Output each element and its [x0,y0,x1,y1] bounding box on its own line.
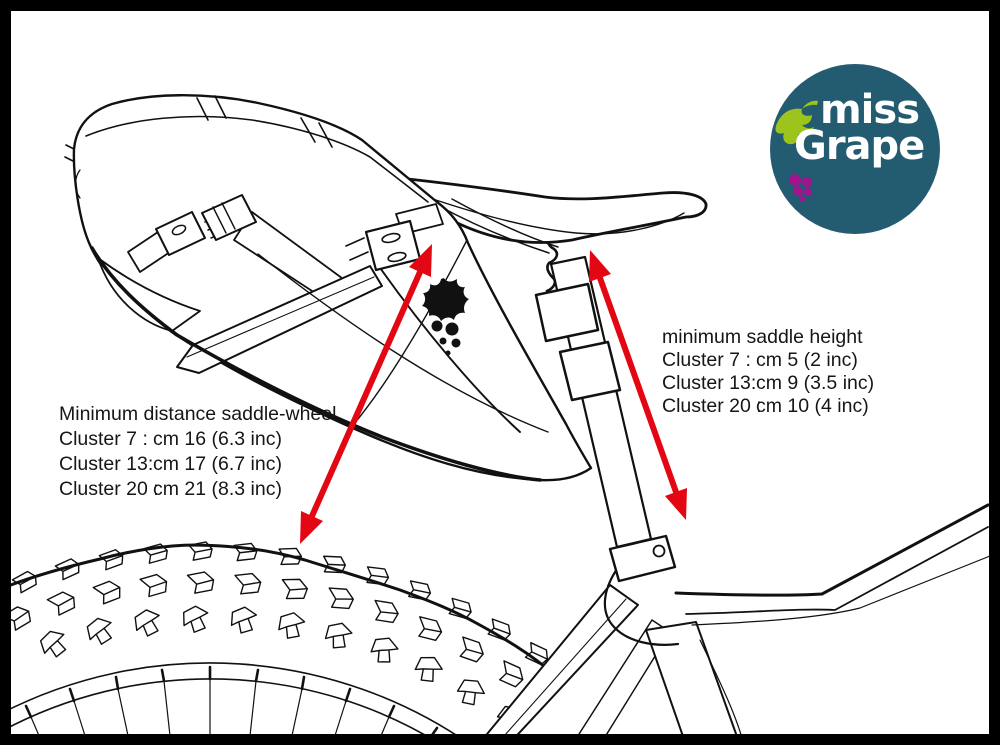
note-row-label: Cluster 7 : [662,349,756,372]
note-row-label: Cluster 20 : [59,477,153,502]
logo-word-grape: Grape [794,126,924,166]
note-row-label: Cluster 13: [662,372,756,395]
note-row-value: cm 17 (6.7 inc) [153,452,282,477]
note-row: Cluster 13: cm 9 (3.5 inc) [662,372,874,395]
note-row-value: cm 16 (6.3 inc) [153,427,282,452]
logo-grapes-icon [789,174,812,202]
note-row: Cluster 20 : cm 21 (8.3 inc) [59,477,336,502]
note-row: Cluster 7 : cm 5 (2 inc) [662,349,874,372]
note-saddle-wheel: Minimum distance saddle-wheel Cluster 7 … [59,402,336,502]
miss-grape-logo: miss Grape [770,64,940,234]
clamp-bolt-icon [654,546,665,557]
note-saddle-height: minimum saddle height Cluster 7 : cm 5 (… [662,326,874,418]
clearance-diagram: Minimum distance saddle-wheel Cluster 7 … [0,0,1000,745]
note-title: Minimum distance saddle-wheel [59,402,336,427]
note-row-label: Cluster 13: [59,452,153,477]
note-row-value: cm 5 (2 inc) [756,349,858,372]
note-row: Cluster 7 : cm 16 (6.3 inc) [59,427,336,452]
note-row-value: cm 10 (4 inc) [756,395,869,418]
note-row-value: cm 21 (8.3 inc) [153,477,282,502]
note-row-label: Cluster 7 : [59,427,153,452]
note-row-value: cm 9 (3.5 inc) [756,372,874,395]
tire-tread-knobs [1,542,551,737]
frame-drawing [478,505,990,745]
note-row: Cluster 20 : cm 10 (4 inc) [662,395,874,418]
note-row-label: Cluster 20 : [662,395,756,418]
wheel-rim [0,663,471,745]
note-title: minimum saddle height [662,326,874,349]
note-row: Cluster 13: cm 17 (6.7 inc) [59,452,336,477]
rear-wheel-drawing [0,542,556,745]
